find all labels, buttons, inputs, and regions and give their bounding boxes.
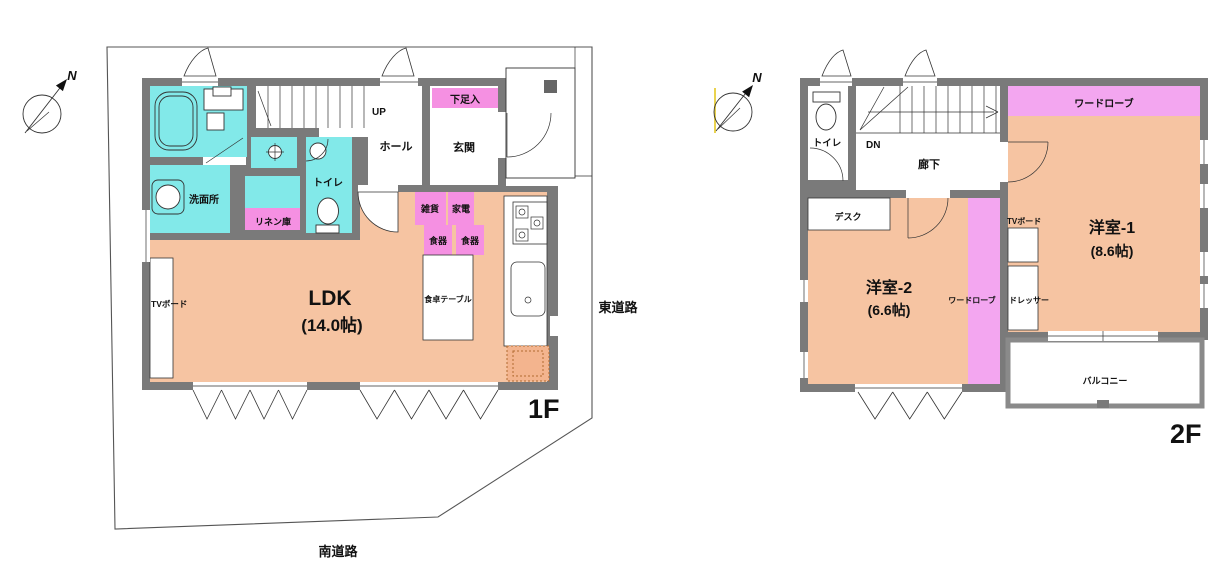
stairs-up-label: UP	[372, 107, 386, 118]
entrance-porch	[506, 68, 575, 178]
corridor-label: 廊下	[918, 157, 940, 171]
ldk-size-label: (14.0帖)	[301, 315, 362, 335]
room-yoshitsu-1: ワードローブ 洋室-1 (8.6帖) TVボード ドレッサー	[1000, 86, 1200, 332]
wardrobe-side-label: ワードローブ	[948, 295, 996, 305]
room-washroom: 洗面所	[150, 165, 230, 233]
floor-2f: N トイレ DN 廊下	[714, 50, 1208, 449]
dresser-label: ドレッサー	[1009, 296, 1049, 305]
tv-board-2f	[1008, 228, 1038, 262]
room-entrance: 下足入 玄関	[430, 86, 506, 185]
room-yoshitsu-2: デスク 洋室-2 (6.6帖)	[808, 190, 968, 384]
compass-1f-icon: N	[23, 68, 77, 133]
ldk-label: LDK	[308, 287, 351, 310]
room1-label: 洋室-1	[1089, 218, 1135, 237]
awning-window-icon	[905, 50, 935, 76]
balcony-label: バルコニー	[1083, 376, 1128, 386]
compass-n-label-2f: N	[752, 70, 762, 85]
awning-window-icon	[184, 48, 216, 76]
casement-windows-south-right	[360, 390, 498, 419]
floor-1f: N 東道路 南道路 洗面所	[23, 47, 638, 559]
tv-board-1f-label: TVボード	[151, 299, 187, 309]
linen-label: リネン庫	[255, 216, 291, 227]
balcony-post	[1097, 400, 1109, 408]
room2-size-label: (6.6帖)	[868, 302, 911, 318]
stairs-dn-label: DN	[866, 140, 880, 151]
awning-window-icon	[822, 50, 851, 76]
storage-column: リネン庫	[245, 137, 300, 230]
hall-label: ホール	[380, 140, 413, 153]
sink-icon	[511, 262, 545, 316]
dining-table-label: 食卓テーブル	[424, 294, 472, 304]
room-bathroom	[150, 86, 247, 165]
floor-plan-drawing: N 東道路 南道路 洗面所	[0, 0, 1224, 571]
toilet-icon	[816, 104, 836, 130]
road-east-label: 東道路	[598, 300, 638, 315]
toilet-icon	[318, 198, 339, 224]
goods-label: 雑貨	[420, 203, 439, 214]
tv-board-2f-label: TVボード	[1007, 216, 1041, 226]
stairs-2f: DN 廊下	[856, 86, 1000, 190]
room1-size-label: (8.6帖)	[1091, 243, 1134, 259]
washbasin-icon	[156, 185, 180, 209]
shoe-cabinet-label: 下足入	[450, 94, 480, 106]
toilet-1f-label: トイレ	[313, 177, 343, 189]
dish2-label: 食器	[460, 235, 480, 246]
room-toilet-2f: トイレ	[808, 86, 848, 181]
floor-label-1f: 1F	[528, 394, 560, 424]
stove-icon	[513, 202, 547, 244]
balcony: バルコニー	[1008, 331, 1202, 408]
casement-windows-south-left	[193, 390, 307, 419]
room2-label: 洋室-2	[866, 278, 912, 297]
dish1-label: 食器	[428, 235, 448, 246]
floor-plan-page: N 東道路 南道路 洗面所	[0, 0, 1224, 571]
desk-label: デスク	[834, 211, 861, 222]
toilet-2f-label: トイレ	[813, 138, 842, 149]
porch-post	[544, 80, 557, 93]
compass-2f-icon: N	[714, 70, 762, 133]
room-hall: UP ホール	[368, 86, 422, 185]
casement-windows-room2	[858, 392, 962, 419]
entrance-label: 玄関	[453, 140, 475, 154]
floor-label-2f: 2F	[1170, 419, 1202, 449]
washroom-label: 洗面所	[189, 193, 219, 206]
corner-basin-icon	[310, 143, 326, 159]
compass-n-label-1f: N	[67, 68, 77, 83]
appliance-label: 家電	[452, 203, 470, 214]
road-south-label: 南道路	[318, 544, 358, 559]
awning-window-icon	[382, 48, 414, 76]
wardrobe-top-label: ワードローブ	[1074, 97, 1133, 110]
room-toilet-1f: トイレ	[306, 137, 352, 233]
